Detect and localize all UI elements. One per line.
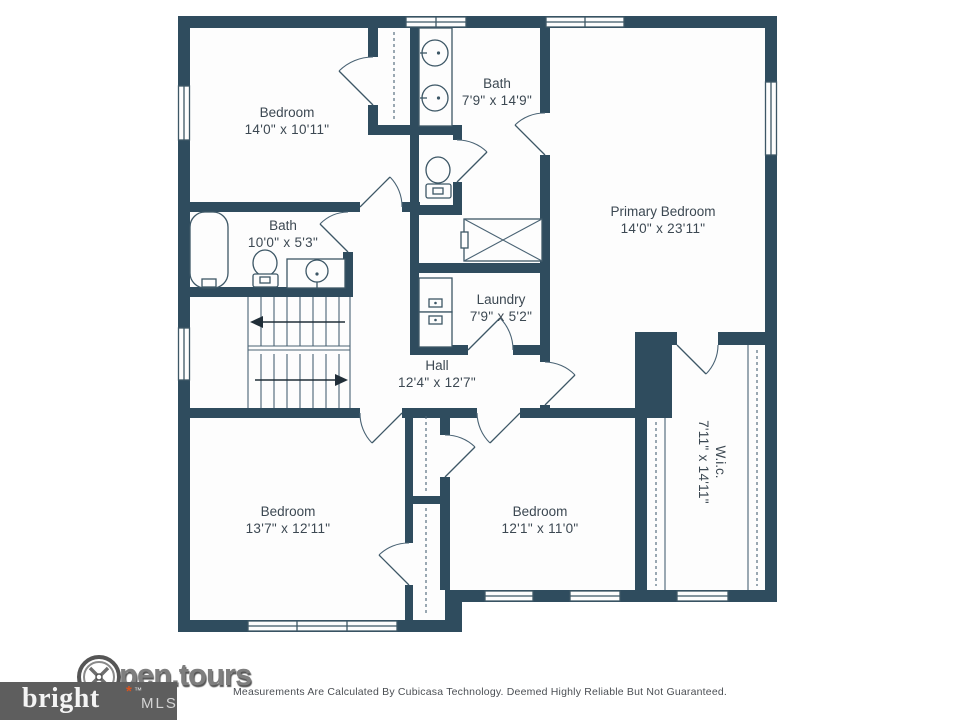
window bbox=[570, 591, 620, 601]
window bbox=[766, 82, 777, 155]
room-label-bath-hall: Bath 10'0" x 5'3" bbox=[248, 217, 318, 251]
window bbox=[546, 17, 624, 27]
measurement-disclaimer: Measurements Are Calculated By Cubicasa … bbox=[0, 686, 960, 698]
room-label-primary-bedroom: Primary Bedroom 14'0" x 23'11" bbox=[610, 203, 715, 237]
window bbox=[485, 591, 533, 601]
dryer-icon bbox=[419, 312, 452, 347]
window bbox=[677, 591, 728, 601]
sink-icon bbox=[287, 259, 345, 288]
shower-icon bbox=[461, 219, 542, 261]
room-label-laundry: Laundry 7'9" x 5'2" bbox=[470, 291, 532, 325]
toilet-icon bbox=[253, 250, 278, 287]
room-label-bedroom-bottom-middle: Bedroom 12'1" x 11'0" bbox=[502, 503, 579, 537]
room-label-hall: Hall 12'4" x 12'7" bbox=[398, 357, 476, 391]
bathtub-icon bbox=[190, 212, 228, 288]
washer-icon bbox=[419, 278, 452, 312]
window bbox=[179, 328, 190, 380]
window bbox=[406, 17, 466, 27]
toilet-icon bbox=[426, 157, 451, 198]
room-label-bath-ensuite: Bath 7'9" x 14'9" bbox=[462, 75, 532, 109]
window bbox=[179, 86, 190, 140]
window bbox=[248, 621, 397, 631]
room-label-bedroom-bottom-left: Bedroom 13'7" x 12'11" bbox=[246, 503, 331, 537]
room-label-wic: W.i.c. 7'11" x 14'11" bbox=[695, 420, 729, 504]
floorplan-page: Bedroom 14'0" x 10'11" Bath 7'9" x 14'9"… bbox=[0, 0, 960, 720]
room-label-bedroom-top-left: Bedroom 14'0" x 10'11" bbox=[245, 104, 330, 138]
